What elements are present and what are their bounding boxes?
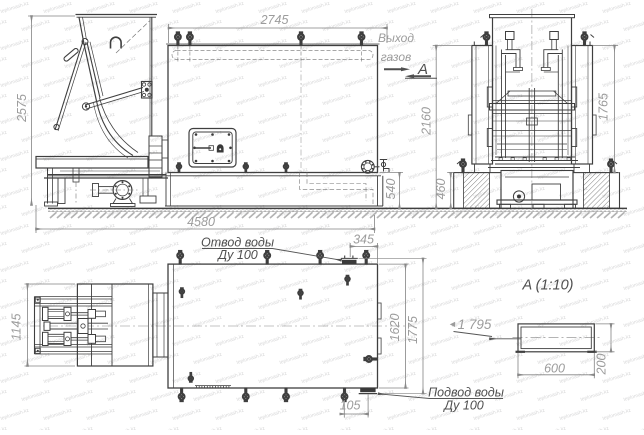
svg-text:600: 600 <box>544 362 565 376</box>
svg-text:2575: 2575 <box>15 94 29 123</box>
svg-text:2745: 2745 <box>260 13 289 27</box>
svg-text:A: A <box>417 61 428 78</box>
svg-text:1145: 1145 <box>10 314 24 341</box>
svg-text:Подвод воды: Подвод воды <box>428 386 504 400</box>
svg-text:газов: газов <box>381 50 412 64</box>
svg-text:4580: 4580 <box>187 215 215 229</box>
svg-text:460: 460 <box>434 179 448 200</box>
svg-text:Выход: Выход <box>378 31 414 45</box>
svg-text:1620: 1620 <box>388 314 402 342</box>
svg-text:2160: 2160 <box>420 107 434 136</box>
svg-text:1775: 1775 <box>406 316 420 344</box>
svg-text:◄: ◄ <box>448 319 457 329</box>
svg-text:345: 345 <box>353 233 374 247</box>
svg-text:Ду 100: Ду 100 <box>216 248 258 262</box>
svg-text:540: 540 <box>384 179 398 200</box>
svg-text:200: 200 <box>595 354 609 376</box>
svg-text:105: 105 <box>340 399 361 413</box>
svg-text:1 795: 1 795 <box>458 317 492 332</box>
svg-text:A (1:10): A (1:10) <box>521 278 573 294</box>
svg-text:Ду 100: Ду 100 <box>442 399 484 413</box>
svg-text:1765: 1765 <box>597 93 611 121</box>
